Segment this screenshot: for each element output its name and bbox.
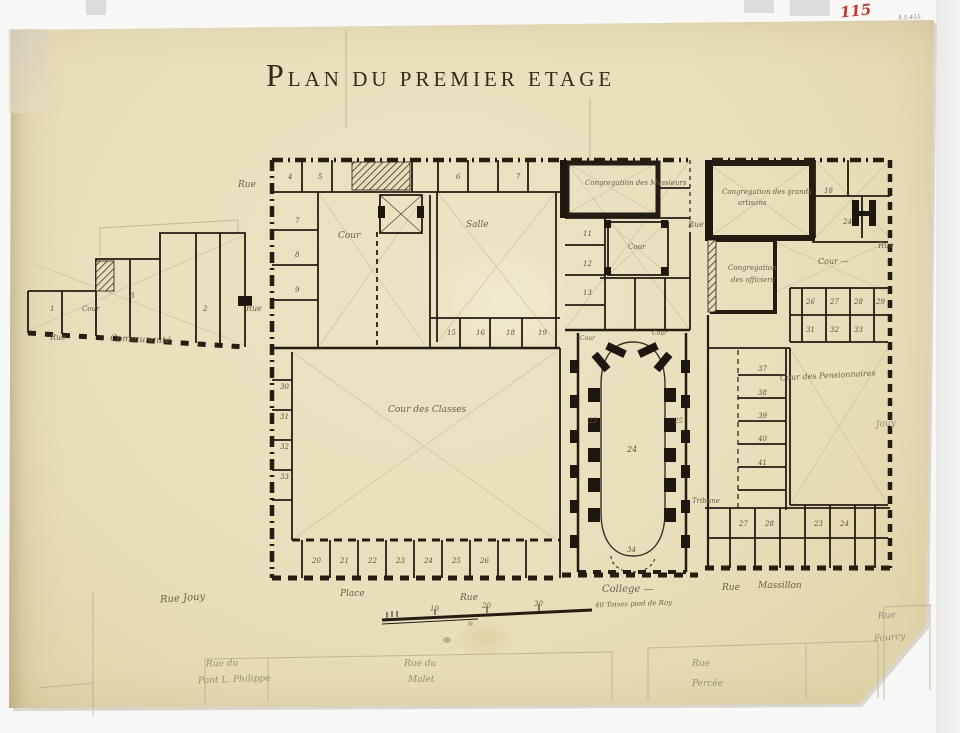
label-rue: Rue: [238, 181, 256, 190]
room-number: 38: [758, 390, 767, 397]
room-number: 24: [843, 219, 852, 226]
room-number: 6: [456, 174, 460, 181]
room-number-chapel-nave: 24: [627, 446, 637, 454]
room-number: 5: [318, 174, 322, 181]
label-cour: Cour: [82, 306, 99, 313]
room-number: 3: [130, 293, 134, 300]
room-number: 32: [280, 444, 289, 451]
room-number: 41: [758, 460, 767, 467]
room-number: 19: [538, 330, 547, 337]
label-cour-des-classes: Cour des Classes: [388, 406, 466, 415]
label-congregation-messieurs: Congregation des Messieurs: [585, 180, 686, 187]
pencil-rue: Rue: [692, 660, 710, 669]
label-salle: Salle: [466, 221, 489, 230]
construction-lines: [30, 160, 890, 540]
room-number: 24: [424, 558, 433, 565]
label-rue: Rue: [246, 305, 262, 313]
room-number: 23: [396, 558, 405, 565]
room-number: 16: [476, 330, 485, 337]
room-number: 7: [516, 174, 520, 181]
room-number: 4: [288, 174, 292, 181]
scale-tick: 10: [430, 606, 439, 613]
label-rue: Rue: [460, 594, 478, 603]
scale-tick: 30: [534, 601, 543, 608]
room-number: 21: [340, 558, 349, 565]
label-congregation-artisans: Congregation des grands: [722, 189, 812, 196]
room-number: 33: [854, 327, 863, 334]
room-number: 25: [452, 558, 461, 565]
room-number: 18: [824, 188, 833, 195]
room-number: 29: [876, 299, 885, 306]
room-number: 13: [583, 290, 592, 297]
scanned-plan-sheet: 115 4.5.415 Plan du premier etage: [0, 0, 960, 733]
room-number: 31: [806, 327, 815, 334]
label-rue: Rue: [722, 584, 740, 593]
left-wing: [28, 233, 245, 347]
room-number: 8: [295, 252, 299, 259]
room-number: 12: [583, 261, 592, 268]
room-number: 27: [830, 299, 839, 306]
pencil-rue-du: Rue du: [404, 660, 436, 669]
room-number: 26: [480, 558, 489, 565]
room-number: 34: [627, 547, 636, 554]
label-rue: Rue: [878, 242, 894, 250]
right-block: [705, 160, 890, 570]
room-number: 18: [506, 330, 515, 337]
room-number: 9: [295, 287, 299, 294]
label-place: Place: [340, 590, 365, 599]
room-number: 24: [840, 521, 849, 528]
room-number: 33: [280, 474, 289, 481]
room-number: 27: [739, 521, 748, 528]
room-number: 15: [447, 330, 456, 337]
label-cour: Cour: [652, 331, 667, 337]
room-number: 40: [758, 436, 767, 443]
label-cour: Cour: [338, 232, 360, 241]
room-number: 25: [674, 418, 683, 425]
room-number: 30: [280, 384, 289, 391]
pencil-malet: Malet: [408, 676, 434, 685]
pencil-percee: Percée: [692, 680, 723, 689]
scale-tick: 20: [482, 603, 491, 610]
label-congregation-officiers: des officiers: [731, 277, 774, 284]
room-number: 7: [295, 218, 299, 225]
room-number: 32: [830, 327, 839, 334]
room-number: 23: [814, 521, 823, 528]
room-number: 23: [588, 418, 597, 425]
room-number: 28: [854, 299, 863, 306]
label-college: College —: [602, 585, 653, 595]
room-number: 22: [368, 558, 377, 565]
room-number: 20: [312, 558, 321, 565]
pencil-rue: Rue: [878, 611, 897, 622]
pencil-rue-du: Rue du: [206, 659, 239, 669]
room-number: 26: [806, 299, 815, 306]
label-rue: Rue: [50, 334, 66, 342]
room-number: 11: [583, 231, 592, 238]
label-tribune: Tribune: [692, 498, 720, 505]
room-number: 1: [50, 306, 54, 313]
label-rue: Rue: [688, 221, 704, 229]
label-massillon: Massillon: [758, 582, 802, 591]
label-congregation-artisans: artisans: [738, 200, 766, 207]
label-cour: Cour: [580, 336, 595, 342]
room-number: 31: [280, 414, 289, 421]
room-number: 39: [758, 413, 767, 420]
label-cour: Cour: [628, 244, 645, 251]
room-number: 28: [765, 521, 774, 528]
label-cour: Cour —: [818, 258, 848, 266]
room-number: 2: [203, 306, 207, 313]
plan-linework: [0, 0, 960, 733]
room-number: 37: [758, 366, 767, 373]
label-congregation-officiers: Congregation: [728, 265, 776, 272]
